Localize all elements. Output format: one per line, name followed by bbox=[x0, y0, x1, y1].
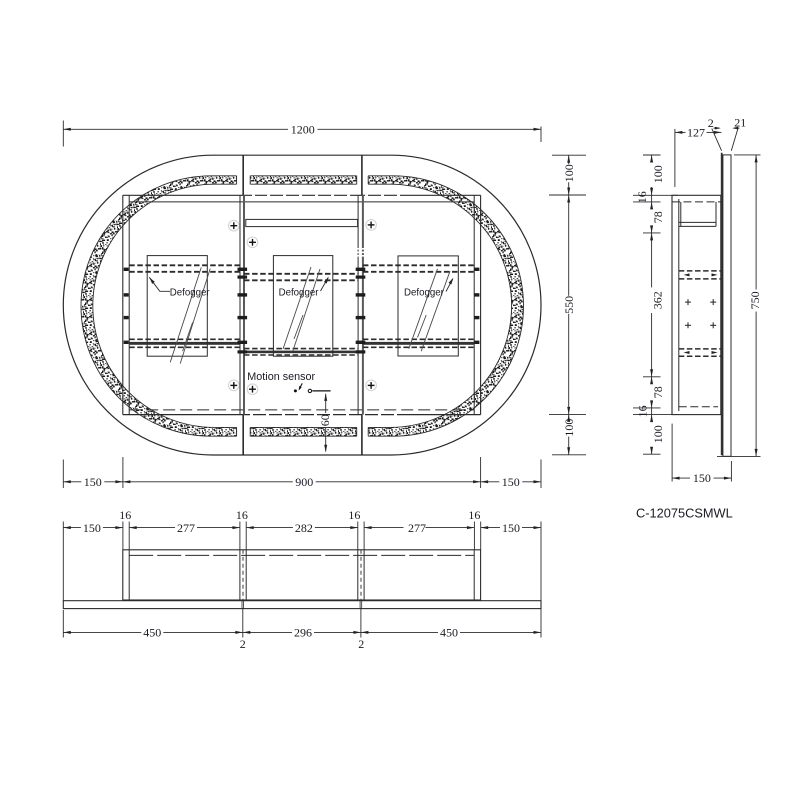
svg-text:16: 16 bbox=[119, 508, 131, 522]
svg-text:Defogger: Defogger bbox=[404, 288, 445, 299]
svg-text:450: 450 bbox=[440, 626, 458, 640]
svg-text:2: 2 bbox=[708, 116, 714, 130]
svg-text:100: 100 bbox=[651, 165, 665, 183]
svg-text:550: 550 bbox=[562, 296, 576, 314]
svg-text:362: 362 bbox=[651, 291, 665, 309]
svg-text:900: 900 bbox=[295, 475, 313, 489]
svg-text:Motion sensor: Motion sensor bbox=[247, 371, 315, 383]
svg-text:16: 16 bbox=[468, 508, 480, 522]
svg-text:16: 16 bbox=[635, 405, 649, 417]
svg-text:277: 277 bbox=[177, 521, 195, 535]
svg-text:150: 150 bbox=[502, 475, 520, 489]
svg-text:78: 78 bbox=[651, 211, 665, 223]
svg-text:16: 16 bbox=[348, 508, 360, 522]
svg-text:100: 100 bbox=[651, 425, 665, 443]
svg-text:Defogger: Defogger bbox=[170, 288, 211, 299]
svg-text:296: 296 bbox=[294, 626, 312, 640]
svg-text:100: 100 bbox=[562, 419, 576, 437]
svg-text:60: 60 bbox=[318, 414, 332, 426]
svg-text:450: 450 bbox=[143, 626, 161, 640]
svg-text:1200: 1200 bbox=[291, 123, 315, 137]
svg-text:750: 750 bbox=[748, 291, 762, 309]
svg-text:16: 16 bbox=[635, 191, 649, 203]
svg-text:150: 150 bbox=[693, 471, 711, 485]
svg-text:C-12075CSMWL: C-12075CSMWL bbox=[636, 506, 733, 521]
svg-text:16: 16 bbox=[236, 508, 248, 522]
svg-text:150: 150 bbox=[83, 521, 101, 535]
svg-text:2: 2 bbox=[358, 637, 364, 651]
svg-text:Defogger: Defogger bbox=[279, 288, 320, 299]
svg-text:150: 150 bbox=[84, 475, 102, 489]
svg-text:78: 78 bbox=[651, 386, 665, 398]
svg-text:127: 127 bbox=[687, 125, 705, 139]
svg-text:150: 150 bbox=[502, 521, 520, 535]
svg-text:277: 277 bbox=[408, 521, 426, 535]
svg-text:282: 282 bbox=[295, 521, 313, 535]
svg-text:2: 2 bbox=[240, 637, 246, 651]
svg-text:100: 100 bbox=[562, 164, 576, 182]
